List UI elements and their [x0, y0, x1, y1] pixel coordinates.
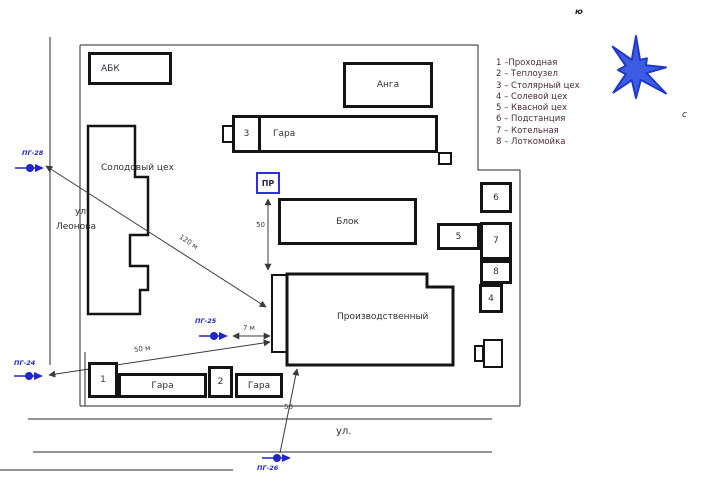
measure-label-50v: 50 [253, 221, 265, 229]
building-garage2-number: 2 [218, 377, 224, 387]
hydrant-symbol-pg28 [15, 164, 44, 172]
compass-north-label: с [682, 110, 687, 120]
street-left-name: Леонова [56, 222, 96, 232]
building-blok-label: Блок [336, 217, 359, 227]
building-gara-top-label: Гара [261, 129, 295, 139]
measure-line-pg24 [49, 342, 270, 375]
building-5-label: 5 [456, 232, 462, 242]
compass-south-label: ю [575, 7, 583, 16]
hydrant-symbols [14, 164, 291, 462]
legend-item-4: 4 – Солевой цех [496, 92, 580, 103]
building-anga-label: Анга [377, 80, 399, 90]
building-6-label: 6 [493, 193, 499, 203]
hydrant-label-pg25: ПГ-25 [195, 317, 216, 325]
legend-item-2: 2 – Теплоузел [496, 69, 580, 80]
pr-marker-label: ПР [262, 179, 275, 188]
legend-item-7: 7 – Котельная [496, 126, 580, 137]
site-plan: АБК Анга 3 Гара Блок 6 5 7 8 4 1 Гара 2 [0, 0, 720, 501]
measure-line-pg28 [46, 166, 266, 307]
building-5: 5 [437, 223, 480, 250]
building-solod-outline [88, 126, 148, 314]
measure-label-50b: 50 [284, 403, 293, 411]
building-solod-label: Солодовый цех [101, 163, 174, 173]
measure-label-7m: 7 м [243, 324, 255, 332]
building-abk-label: АБК [101, 64, 120, 74]
hydrant-symbol-pg24 [14, 372, 43, 380]
hydrant-label-pg24: ПГ-24 [14, 359, 35, 367]
street-bottom-label: ул. [336, 426, 352, 437]
legend-item-6: 6 – Подстанция [496, 114, 580, 125]
building-garage1-cell: 1 [88, 362, 118, 398]
building-anga: Анга [343, 62, 433, 108]
building-abk: АБК [88, 52, 172, 85]
hydrant-label-pg26: ПГ-26 [257, 464, 278, 472]
building-gara-top: 3 Гара [232, 115, 438, 153]
building-4-label: 4 [488, 294, 494, 304]
building-garage1-label: Гара [151, 381, 173, 391]
legend-item-3: 3 – Столярный цех [496, 81, 580, 92]
pr-marker-box: ПР [256, 172, 280, 194]
site-boundary [0, 37, 520, 470]
legend-item-1: 1 –Проходная [496, 58, 580, 69]
building-garage2-cell: 2 [208, 366, 233, 398]
hydrant-symbol-pg26 [262, 454, 291, 462]
hydrant-symbol-pg25 [199, 332, 228, 340]
building-gara-top-cell3: 3 [235, 118, 261, 150]
building-8: 8 [480, 260, 512, 284]
building-proizv-label: Производственный [337, 312, 428, 322]
building-small [483, 339, 503, 368]
building-6: 6 [480, 182, 512, 213]
building-gara-top-annex [438, 152, 452, 165]
legend-item-8: 8 – Лоткомойка [496, 137, 580, 148]
building-7: 7 [480, 222, 512, 260]
building-garage2-label: Гара [248, 381, 270, 391]
building-garage1-number: 1 [100, 375, 106, 385]
building-garage1: Гара [118, 373, 207, 398]
building-4: 4 [479, 284, 503, 313]
legend-item-5: 5 – Квасной цех [496, 103, 580, 114]
building-8-label: 8 [493, 267, 499, 277]
building-7-label: 7 [493, 236, 499, 246]
compass-star-icon [613, 36, 666, 98]
building-gara-top-number: 3 [244, 129, 250, 139]
street-left-prefix: ул. [75, 207, 89, 217]
building-garage2: Гара [235, 373, 283, 398]
building-blok: Блок [278, 198, 417, 245]
legend: 1 –Проходная 2 – Теплоузел 3 – Столярный… [496, 58, 580, 148]
hydrant-label-pg28: ПГ-28 [22, 149, 43, 157]
